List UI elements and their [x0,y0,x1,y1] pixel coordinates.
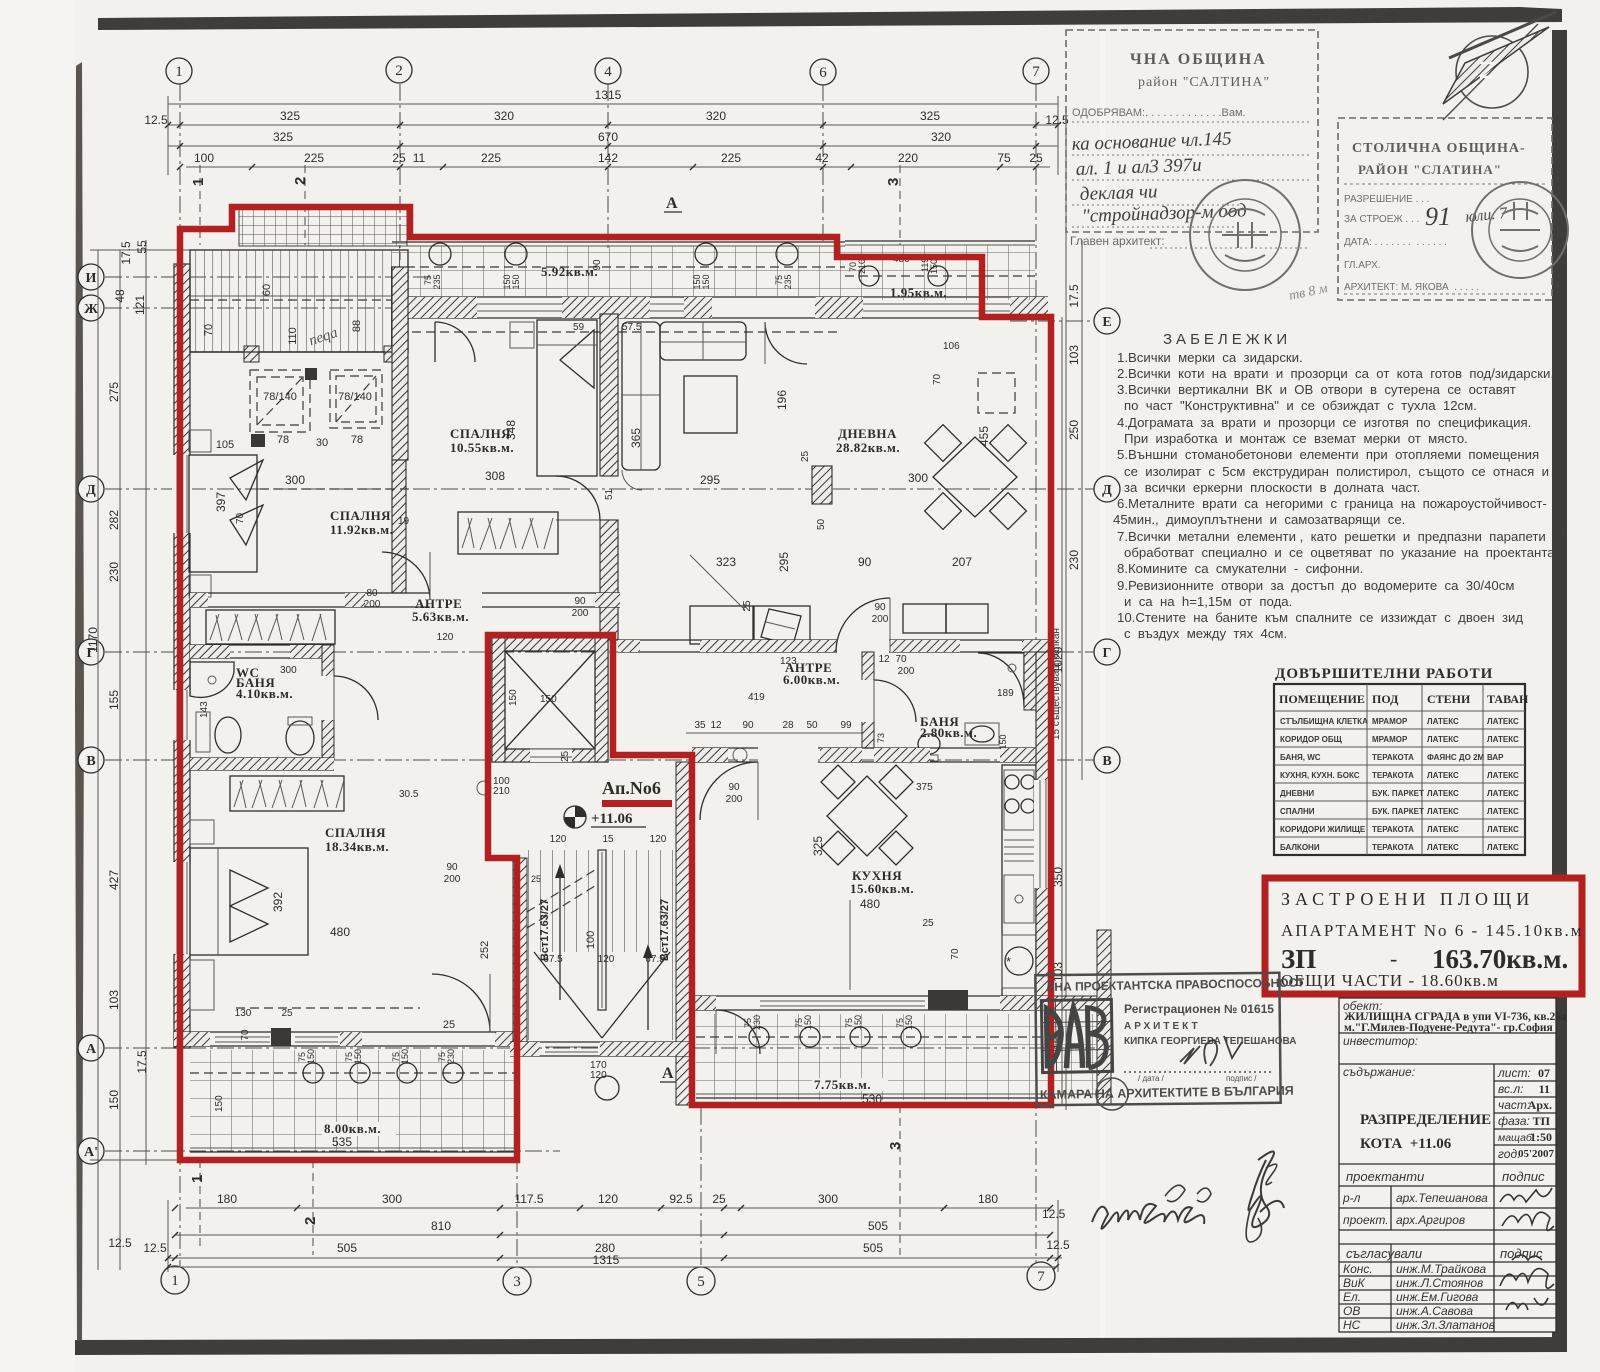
svg-text:1: 1 [175,64,183,80]
svg-text:7: 7 [1037,1269,1045,1285]
svg-text:230: 230 [752,1015,762,1030]
svg-text:6.Металните врати са негори: 6.Металните врати са негорими с граница … [1117,496,1547,511]
svg-text:лист:: лист: [1497,1066,1531,1080]
svg-text:150: 150 [998,734,1008,749]
svg-text:78/140: 78/140 [338,391,372,403]
svg-text:ЗП: ЗП [1281,944,1316,974]
svg-text:90: 90 [574,596,586,607]
svg-text:ЛАТЕКС: ЛАТЕКС [1487,735,1519,744]
svg-text:150: 150 [904,1015,914,1030]
svg-text:15.60кв.м.: 15.60кв.м. [850,881,914,896]
svg-text:25: 25 [531,874,541,884]
svg-text:142: 142 [598,151,618,165]
svg-text:67.5: 67.5 [543,954,563,965]
svg-text:4: 4 [604,64,612,80]
svg-text:91: 91 [1425,202,1451,231]
svg-text:397: 397 [214,492,228,512]
svg-text:11: 11 [1539,1082,1550,1096]
svg-text:28.82кв.м.: 28.82кв.м. [836,440,900,455]
svg-text:вс.л:: вс.л: [1498,1082,1523,1096]
svg-text:150: 150 [353,1049,363,1064]
svg-text:90: 90 [592,259,603,271]
svg-text:50: 50 [816,518,827,530]
svg-text:300: 300 [818,1192,838,1206]
svg-text:ЛАТЕКС: ЛАТЕКС [1427,717,1459,726]
svg-text:35: 35 [694,720,706,731]
svg-text:-: - [1390,946,1397,971]
svg-text:ДАТА: . . . . . . . . . . . .: ДАТА: . . . . . . . . . . . . . [1344,237,1447,248]
svg-text:25: 25 [800,450,811,462]
svg-text:70: 70 [203,324,215,336]
svg-text:ЗАБЕЛЕЖКИ: ЗАБЕЛЕЖКИ [1163,331,1291,348]
svg-text:ЛАТЕКС: ЛАТЕКС [1487,843,1519,852]
svg-text:189: 189 [997,688,1014,699]
svg-text:45мин., димоуплътнени и сам: 45мин., димоуплътнени и самозатварящи се… [1113,512,1405,527]
svg-text:7: 7 [1032,64,1040,80]
svg-text:СТЪЛБИЩНА КЛЕТКА: СТЪЛБИЩНА КЛЕТКА [1280,717,1368,726]
svg-text:120: 120 [590,1070,607,1081]
svg-text:12.5: 12.5 [143,1241,167,1255]
svg-text:210: 210 [493,786,510,797]
svg-text:70: 70 [932,373,943,385]
svg-text:/ дата /: / дата / [1138,1074,1165,1083]
svg-text:88: 88 [351,320,363,332]
svg-text:арх.Тепешанова: арх.Тепешанова [1396,1191,1488,1205]
svg-text:25: 25 [922,918,934,929]
svg-text:80: 80 [366,588,378,599]
svg-text:103: 103 [1067,345,1081,365]
svg-text:ЛАТЕКС: ЛАТЕКС [1487,717,1519,726]
svg-text:200: 200 [444,874,461,885]
svg-text:3: 3 [887,1142,904,1150]
svg-text:ОБЩИ ЧАСТИ - 18.60кв.м: ОБЩИ ЧАСТИ - 18.60кв.м [1281,971,1499,990]
svg-text:арх.Аргиров: арх.Аргиров [1396,1213,1465,1227]
svg-text:308: 308 [485,469,505,483]
svg-text:1170: 1170 [86,627,100,653]
svg-text:120: 120 [598,1192,618,1206]
svg-text:230: 230 [446,1049,456,1064]
svg-text:505: 505 [868,1219,888,1233]
svg-text:А': А' [84,1145,98,1160]
svg-text:12.5: 12.5 [144,113,168,127]
svg-text:проектанти: проектанти [1346,1169,1424,1184]
svg-text:535: 535 [332,1135,352,1149]
svg-text:Ап.No6: Ап.No6 [602,778,661,798]
svg-text:295: 295 [777,552,791,572]
svg-text:5.63кв.м.: 5.63кв.м. [412,609,469,624]
svg-text:7.Всички метални елементи ,: 7.Всички метални елементи , като решетки… [1117,529,1567,544]
svg-text:съдържание:: съдържание: [1343,1065,1415,1079]
svg-text:В: В [86,754,95,769]
svg-text:207: 207 [952,555,972,569]
svg-text:Арх.: Арх. [1528,1098,1552,1112]
svg-text:12.5: 12.5 [1046,1238,1070,1252]
svg-text:инж.Ем.Гигова: инж.Ем.Гигова [1396,1290,1479,1304]
svg-text:392: 392 [271,892,285,912]
svg-text:ал. 1 и ал3 397и: ал. 1 и ал3 397и [1075,155,1201,180]
svg-text:ТЕРАКОТА: ТЕРАКОТА [1372,843,1414,852]
svg-text:25: 25 [443,1019,455,1031]
svg-text:375: 375 [916,782,933,793]
svg-text:51: 51 [604,488,615,500]
svg-text:Главен архитект:: Главен архитект: [1070,234,1165,248]
svg-text:ЛАТЕКС: ЛАТЕКС [1427,771,1459,780]
svg-text:90: 90 [446,862,458,873]
svg-text:ЗАСТРОЕНИ ПЛОЩИ: ЗАСТРОЕНИ ПЛОЩИ [1281,889,1534,909]
svg-text:ЛАТЕКС: ЛАТЕКС [1487,789,1519,798]
svg-text:505: 505 [337,1241,357,1255]
svg-text:150: 150 [508,689,519,706]
svg-text:р-л: р-л [1342,1191,1361,1205]
svg-text:230: 230 [107,562,121,582]
svg-text:РАЗПРЕДЕЛЕНИЕ: РАЗПРЕДЕЛЕНИЕ [1360,1112,1491,1128]
svg-text:4.Дограмата за врати и про: 4.Дограмата за врати и прозорци се изгот… [1117,415,1531,430]
svg-text:Ел.: Ел. [1343,1290,1361,1304]
svg-text:150: 150 [107,1090,121,1110]
svg-text:2: 2 [302,1217,319,1225]
svg-text:8.00кв.м.: 8.00кв.м. [324,1121,381,1136]
svg-text:ЧНА ОБЩИНА: ЧНА ОБЩИНА [1130,51,1267,68]
svg-text:А: А [662,1065,674,1082]
svg-text:143: 143 [199,701,210,718]
svg-text:1:50: 1:50 [1530,1130,1552,1144]
svg-text:19: 19 [398,516,410,527]
svg-text:Конс.: Конс. [1343,1262,1373,1276]
svg-text:Д: Д [1102,483,1112,498]
svg-text:120: 120 [650,834,667,845]
svg-text:123: 123 [780,656,797,667]
svg-text:295: 295 [700,473,720,487]
svg-text:В: В [1102,754,1111,769]
svg-text:05'2007: 05'2007 [1518,1148,1555,1160]
svg-text:СПАЛНИ: СПАЛНИ [1280,807,1315,816]
svg-text:220: 220 [898,151,918,165]
svg-text:150: 150 [540,694,557,705]
svg-text:300: 300 [285,473,305,487]
svg-text:3: 3 [885,178,902,186]
svg-text:235: 235 [432,274,442,289]
svg-text:АПАРТАМЕНТ No 6 - 145.10кв.м: АПАРТАМЕНТ No 6 - 145.10кв.м [1281,921,1583,940]
svg-text:1: 1 [189,1175,206,1183]
svg-text:78: 78 [277,434,289,446]
svg-text:по част "Конструктивна" и: по част "Конструктивна" и се обзиждат с … [1124,398,1477,413]
svg-text:90: 90 [728,782,740,793]
svg-text:ОВ: ОВ [1343,1304,1360,1318]
svg-text:ТАВАН: ТАВАН [1487,692,1529,706]
svg-text:150: 150 [400,1049,410,1064]
svg-text:455: 455 [977,426,991,446]
svg-text:СПАЛНЯ: СПАЛНЯ [330,508,391,523]
svg-text:подпис /: подпис / [1226,1074,1257,1083]
svg-text:42: 42 [815,151,829,165]
svg-text:320: 320 [706,109,726,123]
svg-text:ЛАТЕКС: ЛАТЕКС [1427,825,1459,834]
svg-text:1315: 1315 [595,88,622,102]
svg-text:25: 25 [712,1192,726,1206]
svg-text:57.5: 57.5 [622,322,642,333]
svg-text:инж.Зл.Златанов: инж.Зл.Златанов [1396,1318,1495,1332]
svg-text:ДНЕВНА: ДНЕВНА [838,426,897,441]
svg-text:м."Г.Милев-Подуене-Редута"- гр: м."Г.Милев-Подуене-Редута"- гр.София [1344,1022,1553,1034]
svg-text:ВАР: ВАР [1487,753,1504,762]
svg-text:ТЕРАКОТА: ТЕРАКОТА [1372,753,1414,762]
svg-text:275: 275 [107,382,121,402]
svg-text:325: 325 [811,836,825,856]
svg-text:200: 200 [726,794,743,805]
svg-text:103: 103 [107,990,121,1010]
svg-text:СТЕНИ: СТЕНИ [1427,692,1471,706]
svg-text:110: 110 [287,327,299,345]
svg-text:ФАЯНС ДО 2М: ФАЯНС ДО 2М [1427,753,1485,762]
svg-text:Г: Г [1103,646,1112,661]
svg-text:11: 11 [413,151,426,165]
svg-text:300: 300 [908,471,928,485]
svg-text:3.Всички вертикални ВК и О: 3.Всички вертикални ВК и ОВ отвори в сут… [1117,382,1516,397]
svg-text:подпис: подпис [1500,1246,1543,1261]
svg-text:25: 25 [281,1008,293,1019]
svg-text:130: 130 [235,1008,252,1019]
svg-text:17.5: 17.5 [119,241,133,265]
svg-text:12.5: 12.5 [1042,1207,1066,1221]
svg-text:90: 90 [742,720,754,731]
svg-text:30.5: 30.5 [399,789,419,800]
svg-text:70: 70 [895,654,907,665]
svg-text:3: 3 [513,1274,521,1290]
svg-text:150: 150 [853,1015,863,1030]
svg-text:СПАЛНЯ: СПАЛНЯ [325,825,386,840]
svg-text:деклая чи: деклая чи [1079,181,1157,205]
svg-text:1: 1 [171,1273,179,1289]
svg-text:325: 325 [920,109,940,123]
svg-text:92.5: 92.5 [669,1192,693,1206]
svg-text:300: 300 [280,665,297,676]
svg-text:106: 106 [943,341,960,352]
svg-text:ЛАТЕКС: ЛАТЕКС [1487,825,1519,834]
svg-text:1: 1 [190,178,207,186]
svg-text:2: 2 [292,177,309,185]
svg-text:480: 480 [860,897,880,911]
svg-text:РАЗРЕШЕНИЕ . . .: РАЗРЕШЕНИЕ . . . [1344,194,1430,205]
svg-text:120: 120 [550,834,567,845]
svg-text:АРХИТЕКТ: М. ЯКОВА . . . . .: АРХИТЕКТ: М. ЯКОВА . . . . . [1344,282,1479,293]
svg-text:70: 70 [235,512,246,524]
svg-text:121: 121 [133,295,147,315]
svg-text:59: 59 [573,322,585,333]
svg-text:120: 120 [437,632,454,643]
svg-text:505: 505 [863,1241,883,1255]
svg-text:+11.06: +11.06 [591,811,633,827]
svg-text:12.5: 12.5 [108,1236,132,1250]
svg-text:А: А [666,195,678,212]
svg-text:Вст17.63/27: Вст17.63/27 [659,899,671,961]
svg-text:55: 55 [135,240,149,254]
svg-text:5.Външни стоманобетонови еле: 5.Външни стоманобетонови елементи при от… [1117,447,1539,462]
svg-text:ЛАТЕКС: ЛАТЕКС [1487,771,1519,780]
svg-text:196: 196 [775,390,789,410]
svg-text:70: 70 [950,948,961,960]
svg-text:120: 120 [598,954,615,965]
svg-text:1.Всички мерки са зидарски.: 1.Всички мерки са зидарски. [1117,350,1303,365]
svg-text:проект.: проект. [1343,1213,1389,1227]
svg-text:100: 100 [194,151,214,165]
svg-text:ДНЕВНИ: ДНЕВНИ [1280,789,1314,798]
svg-text:225: 225 [304,151,324,165]
svg-text:348: 348 [504,420,518,440]
svg-text:150: 150 [214,1095,225,1112]
svg-text:670: 670 [598,130,618,144]
svg-text:БУК. ПАРКЕТ: БУК. ПАРКЕТ [1372,807,1424,816]
svg-text:300: 300 [382,1192,402,1206]
svg-text:25: 25 [392,151,406,165]
svg-text:СТОЛИЧНА ОБЩИНА-: СТОЛИЧНА ОБЩИНА- [1352,141,1526,156]
svg-text:МРАМОР: МРАМОР [1372,735,1408,744]
svg-text:подпис: подпис [1502,1169,1545,1184]
svg-text:с въздух между тях 4см.: с въздух между тях 4см. [1124,626,1287,641]
svg-text:част:: част: [1498,1098,1530,1112]
svg-text:4.10кв.м.: 4.10кв.м. [236,686,293,701]
svg-text:320: 320 [931,130,951,144]
svg-text:БАНЯ, WC: БАНЯ, WC [1280,753,1321,762]
svg-text:180: 180 [978,1192,998,1206]
svg-text:2.Всички коти на врати и: 2.Всички коти на врати и прозорци са от … [1117,366,1554,381]
svg-text:обработват специално и се: обработват специално и се оцветяват по у… [1124,545,1558,560]
svg-text:48: 48 [113,289,127,303]
svg-text:2: 2 [395,63,403,79]
svg-text:150: 150 [306,1049,316,1064]
svg-text:ЛАТЕКС: ЛАТЕКС [1427,807,1459,816]
svg-text:90: 90 [858,555,872,569]
svg-text:ПОД: ПОД [1372,692,1399,706]
svg-text:100: 100 [585,931,597,949]
svg-text:ТЕРАКОТА: ТЕРАКОТА [1372,825,1414,834]
svg-text:7.75кв.м.: 7.75кв.м. [814,1077,871,1092]
svg-text:5: 5 [697,1274,705,1290]
svg-text:и са на h=1,15м от пода.: и са на h=1,15м от пода. [1124,594,1292,609]
svg-text:365: 365 [629,428,643,448]
svg-text:При изработка и монтаж се: При изработка и монтаж се вземат мерки о… [1124,431,1468,446]
svg-text:67.5: 67.5 [645,954,665,965]
svg-text:30: 30 [316,437,328,449]
svg-text:А: А [86,1042,97,1057]
svg-text:230: 230 [1067,550,1081,570]
svg-text:Вст17.63/27: Вст17.63/27 [539,899,551,961]
svg-text:200: 200 [364,599,381,610]
svg-text:РАЙОН "СЛАТИНА": РАЙОН "СЛАТИНА" [1358,162,1502,177]
svg-text:90: 90 [874,602,886,613]
svg-text:25: 25 [1029,151,1043,165]
svg-text:ЛАТЕКС: ЛАТЕКС [1427,789,1459,798]
svg-text:150: 150 [929,259,939,274]
svg-text:10.Стените на баните към с: 10.Стените на баните към спалните се изз… [1117,610,1523,625]
svg-text:325: 325 [273,130,293,144]
svg-text:И: И [86,271,97,286]
svg-text:50: 50 [806,720,818,731]
svg-text:ВиК: ВиК [1343,1276,1366,1290]
svg-text:2.80кв.м.: 2.80кв.м. [920,725,977,740]
svg-text:150: 150 [803,1015,813,1030]
svg-text:ГЛ.АРХ.: ГЛ.АРХ. [1344,260,1381,271]
svg-text:9.Ревизионните отвори за до: 9.Ревизионните отвори за достъп до водом… [1117,578,1514,593]
svg-text:155: 155 [107,690,121,710]
svg-text:инж.Л.Стоянов: инж.Л.Стоянов [1396,1276,1483,1290]
svg-text:250: 250 [1067,420,1081,440]
svg-text:73: 73 [876,733,886,743]
svg-text:17.5: 17.5 [135,1050,149,1074]
svg-text:ТЕРАКОТА: ТЕРАКОТА [1372,771,1414,780]
svg-text:5.92кв.м.: 5.92кв.м. [541,264,598,279]
svg-text:ОДОБРЯВАМ:. . . . . . . . . .: ОДОБРЯВАМ:. . . . . . . . . . . . .Вам. [1072,107,1246,119]
svg-text:150: 150 [511,274,521,289]
svg-text:ЛАТЕКС: ЛАТЕКС [1487,807,1519,816]
svg-text:инж.А.Савова: инж.А.Савова [1396,1304,1473,1318]
svg-text:200: 200 [572,608,589,619]
svg-text:323: 323 [716,555,736,569]
svg-text:18.34кв.м.: 18.34кв.м. [325,839,389,854]
svg-text:1.95кв.м.: 1.95кв.м. [890,285,947,300]
svg-text:1315: 1315 [593,1253,620,1267]
svg-text:ТП: ТП [1533,1114,1551,1128]
svg-text:БАЛКОНИ: БАЛКОНИ [1280,843,1320,852]
svg-text:Регистрационен № 01615: Регистрационен № 01615 [1124,1002,1274,1016]
svg-text:инвеститор:: инвеститор: [1343,1034,1418,1048]
svg-text:ЛАТЕКС: ЛАТЕКС [1427,735,1459,744]
svg-text:12: 12 [710,720,722,731]
svg-text:225: 225 [481,151,501,165]
svg-text:419: 419 [748,692,765,703]
svg-text:810: 810 [431,1219,451,1233]
svg-text:180: 180 [217,1192,237,1206]
svg-text:163.70кв.м.: 163.70кв.м. [1432,944,1568,974]
svg-text:за всички еркерни плоскости: за всички еркерни плоскости в долната ча… [1124,480,1420,495]
svg-text:320: 320 [494,109,514,123]
svg-text:252: 252 [479,941,491,959]
svg-text:105: 105 [216,439,234,451]
svg-text:117.5: 117.5 [514,1192,543,1206]
svg-text:325: 325 [280,109,300,123]
svg-text:07: 07 [1538,1066,1550,1080]
svg-text:11.92кв.м.: 11.92кв.м. [330,522,393,537]
svg-text:КОТА +11.06: КОТА +11.06 [1360,1136,1452,1152]
svg-text:*: * [1006,954,1011,969]
svg-text:78/140: 78/140 [263,391,297,403]
svg-text:60: 60 [261,284,273,296]
svg-text:БУК. ПАРКЕТ: БУК. ПАРКЕТ [1372,789,1424,798]
svg-text:8.Комините са смукателни -: 8.Комините са смукателни - сифонни. [1117,561,1363,576]
svg-text:170: 170 [590,1060,607,1071]
svg-text:6: 6 [819,65,827,81]
svg-text:Ж: Ж [84,302,98,317]
svg-text:6.00кв.м.: 6.00кв.м. [783,672,840,687]
svg-text:АРХИТЕКТ: АРХИТЕКТ [1124,1021,1201,1032]
svg-text:КОРИДОРИ ЖИЛИЩЕ: КОРИДОРИ ЖИЛИЩЕ [1280,825,1366,834]
svg-text:99: 99 [840,720,852,731]
svg-text:28: 28 [782,720,794,731]
svg-text:ЗА СТРОЕЖ . . .: ЗА СТРОЕЖ . . . [1344,214,1419,225]
svg-text:235: 235 [783,274,793,289]
svg-text:427: 427 [107,870,121,890]
svg-text:150: 150 [701,274,711,289]
svg-text:225: 225 [721,151,741,165]
svg-text:70: 70 [240,1029,251,1041]
svg-text:Д: Д [86,483,96,498]
svg-text:Е: Е [1102,315,1111,330]
svg-text:СПАЛНЯ: СПАЛНЯ [450,426,511,441]
svg-text:200: 200 [872,614,889,625]
svg-text:съгласували: съгласували [1346,1246,1422,1261]
svg-text:се изолират с 5см екструди: се изолират с 5см екструдиран полистирол… [1124,464,1549,479]
svg-text:МРАМОР: МРАМОР [1372,717,1408,726]
svg-text:ДОВЪРШИТЕЛНИ РАБОТИ: ДОВЪРШИТЕЛНИ РАБОТИ [1275,666,1493,682]
